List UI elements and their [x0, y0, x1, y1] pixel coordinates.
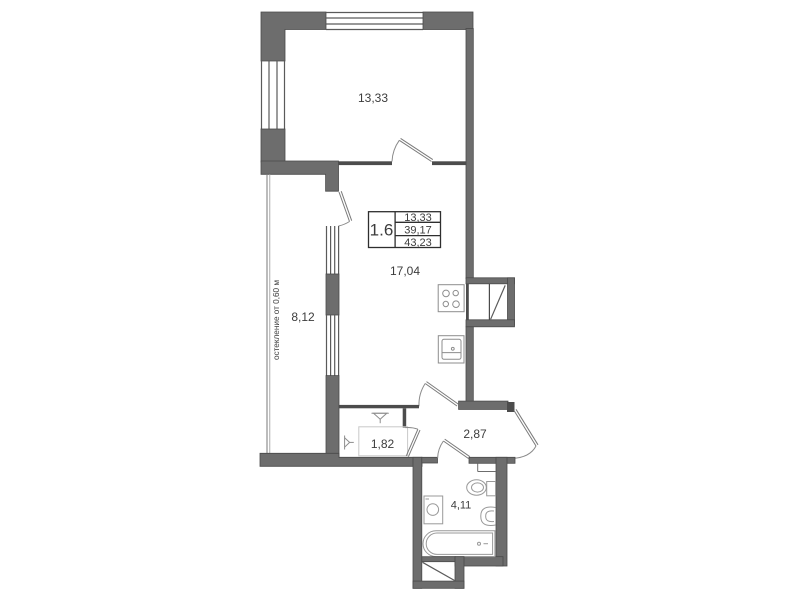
svg-text:13,33: 13,33 — [404, 212, 432, 224]
svg-text:1.6: 1.6 — [370, 221, 394, 240]
svg-text:17,04: 17,04 — [390, 264, 420, 278]
svg-text:4,11: 4,11 — [451, 500, 472, 512]
svg-text:1,82: 1,82 — [371, 437, 395, 451]
svg-text:13,33: 13,33 — [358, 91, 388, 105]
svg-text:8,12: 8,12 — [291, 310, 315, 324]
svg-text:39,17: 39,17 — [404, 225, 432, 237]
svg-text:43,23: 43,23 — [404, 237, 432, 249]
svg-text:остекление от 0,60 м: остекление от 0,60 м — [272, 280, 281, 360]
svg-text:2,87: 2,87 — [463, 427, 487, 441]
